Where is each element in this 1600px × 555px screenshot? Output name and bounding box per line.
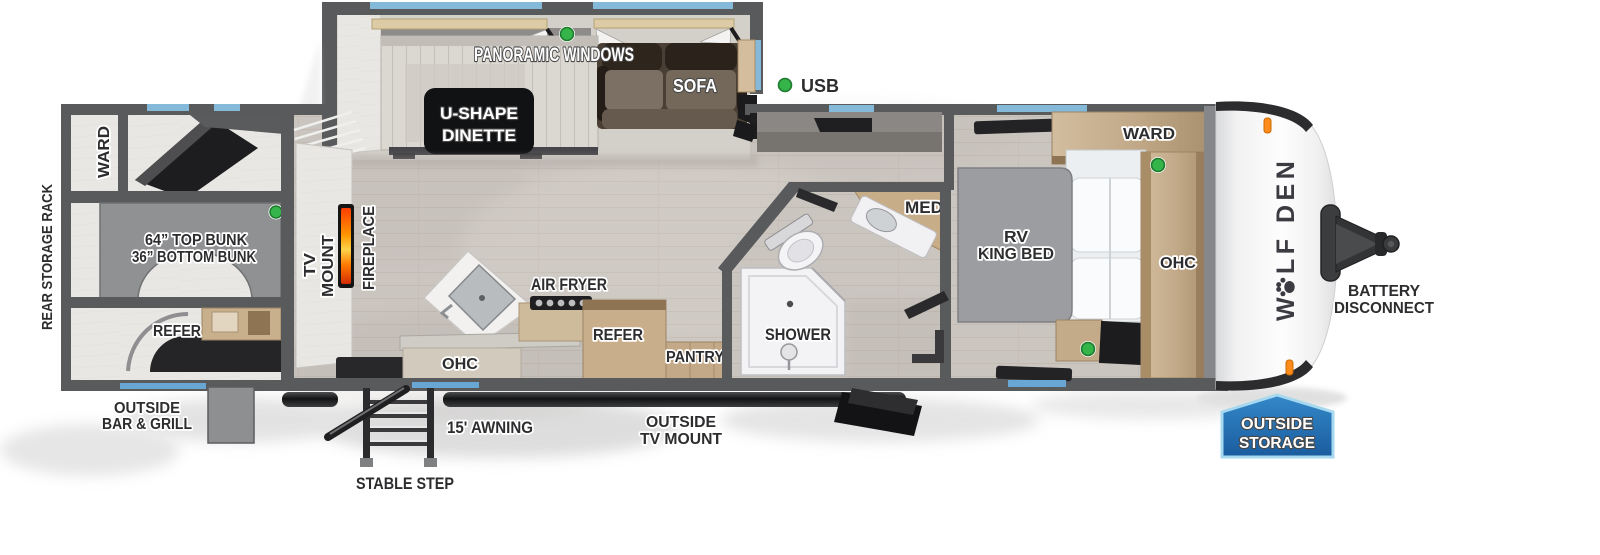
svg-text:PANTRY: PANTRY xyxy=(666,349,724,366)
svg-text:AIR FRYER: AIR FRYER xyxy=(531,276,607,294)
svg-text:REAR STORAGE RACK: REAR STORAGE RACK xyxy=(39,184,56,330)
svg-text:KING BED: KING BED xyxy=(978,246,1054,263)
svg-text:REFER: REFER xyxy=(153,323,201,340)
svg-text:BAR & GRILL: BAR & GRILL xyxy=(102,416,192,433)
svg-text:SOFA: SOFA xyxy=(673,76,717,96)
svg-text:FIREPLACE: FIREPLACE xyxy=(361,206,378,290)
svg-text:RV: RV xyxy=(1004,229,1028,246)
svg-text:64” TOP BUNK: 64” TOP BUNK xyxy=(145,232,247,249)
svg-text:DINETTE: DINETTE xyxy=(442,126,516,145)
svg-text:U-SHAPE: U-SHAPE xyxy=(440,104,518,123)
svg-text:WARD: WARD xyxy=(96,126,113,178)
svg-text:LF DEN: LF DEN xyxy=(1272,157,1300,274)
svg-text:MED: MED xyxy=(905,198,943,217)
svg-text:OUTSIDE: OUTSIDE xyxy=(646,414,716,431)
svg-text:STABLE STEP: STABLE STEP xyxy=(356,474,454,493)
svg-text:TV: TV xyxy=(302,253,319,277)
svg-text:STORAGE: STORAGE xyxy=(1239,435,1315,452)
svg-text:OHC: OHC xyxy=(442,356,478,373)
svg-text:TV MOUNT: TV MOUNT xyxy=(640,431,722,448)
svg-text:OUTSIDE: OUTSIDE xyxy=(1241,416,1313,433)
svg-text:DISCONNECT: DISCONNECT xyxy=(1334,300,1434,317)
svg-text:PANORAMIC WINDOWS: PANORAMIC WINDOWS xyxy=(474,45,634,66)
svg-text:W: W xyxy=(1272,292,1300,321)
svg-text:OUTSIDE: OUTSIDE xyxy=(114,400,180,417)
svg-text:WARD: WARD xyxy=(1123,126,1175,143)
svg-text:15' AWNING: 15' AWNING xyxy=(447,418,533,437)
svg-text:OHC: OHC xyxy=(1160,255,1196,272)
svg-text:REFER: REFER xyxy=(593,327,643,344)
svg-text:36” BOTTOM BUNK: 36” BOTTOM BUNK xyxy=(132,249,256,266)
svg-text:SHOWER: SHOWER xyxy=(765,325,831,344)
svg-text:USB: USB xyxy=(801,76,839,96)
svg-text:MOUNT: MOUNT xyxy=(320,235,337,297)
svg-text:BATTERY: BATTERY xyxy=(1348,283,1420,300)
